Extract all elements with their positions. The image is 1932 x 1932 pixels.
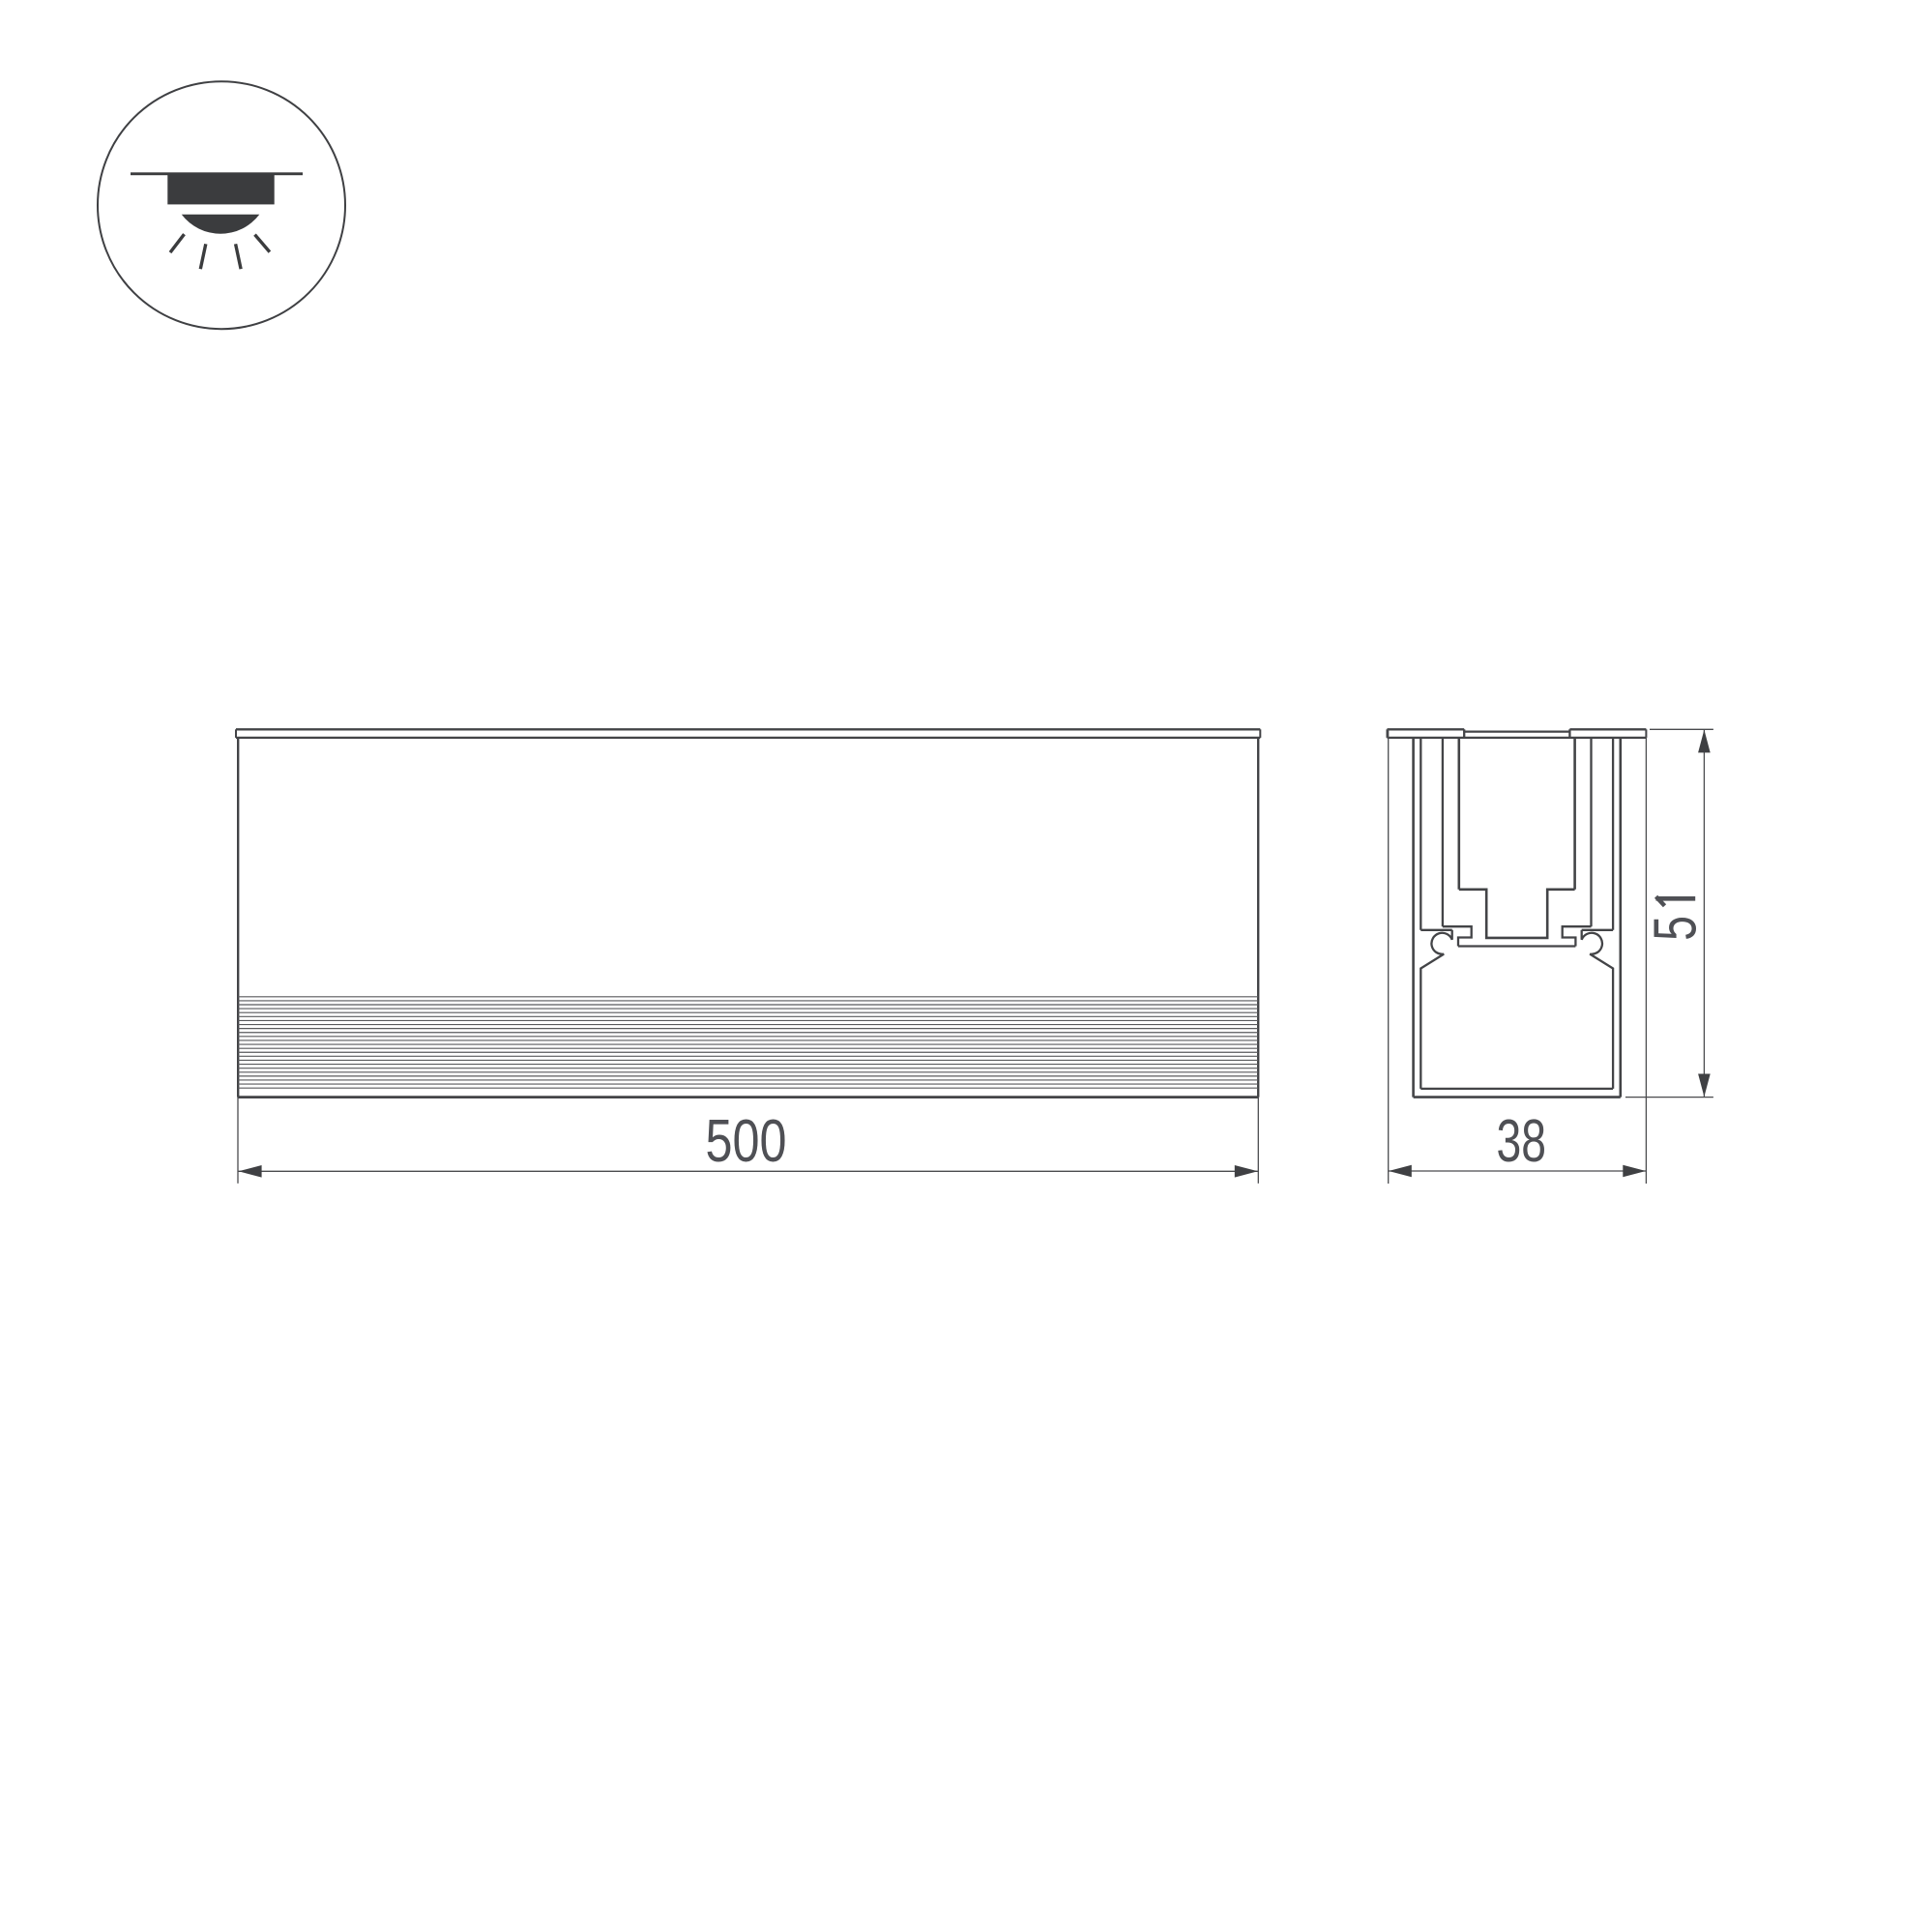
- svg-text:500: 500: [706, 1107, 787, 1175]
- svg-text:5: 5: [1642, 916, 1710, 941]
- svg-text:38: 38: [1497, 1107, 1547, 1175]
